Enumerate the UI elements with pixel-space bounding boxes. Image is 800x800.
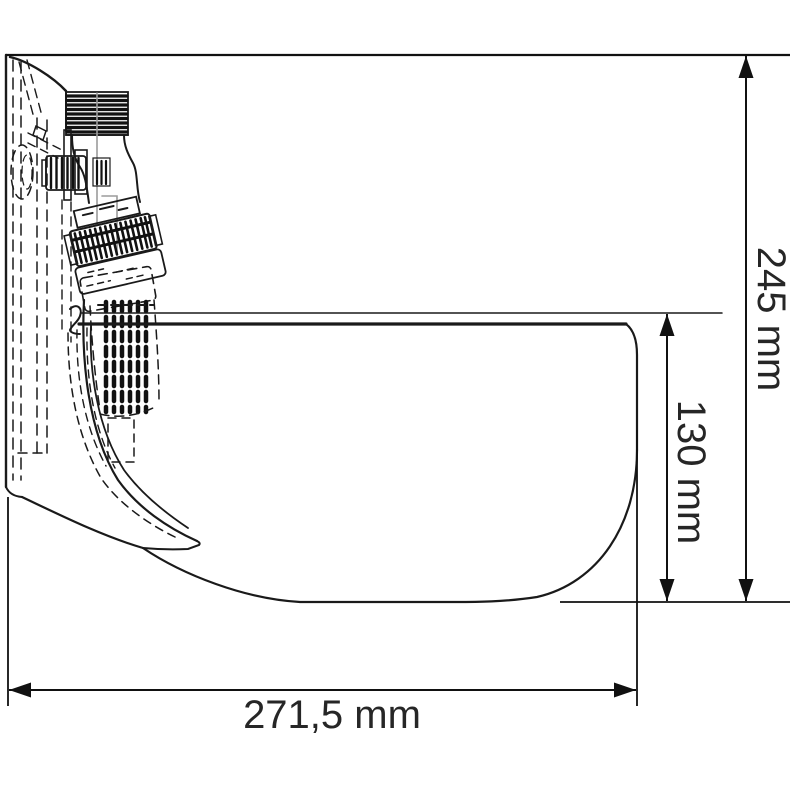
drinking-bowl-drawing (6, 55, 722, 602)
hidden-thread-dashes (106, 302, 146, 412)
drawing-canvas: 245 mm 130 mm 271,5 mm (0, 0, 800, 800)
arrow-down-icon (739, 579, 754, 601)
dimension-label-height: 245 mm (749, 247, 793, 392)
arrow-right-icon (614, 683, 636, 698)
arrow-up-icon (660, 314, 675, 336)
arrow-down-icon (660, 579, 675, 601)
arrow-left-icon (9, 683, 31, 698)
knurled-nut (42, 130, 110, 200)
drinking-bowl (70, 306, 722, 602)
arrow-up-icon (739, 56, 754, 78)
technical-drawing-page: 245 mm 130 mm 271,5 mm (0, 0, 800, 800)
dimension-label-width: 271,5 mm (243, 693, 421, 737)
dimension-label-bowl-depth: 130 mm (669, 400, 713, 545)
